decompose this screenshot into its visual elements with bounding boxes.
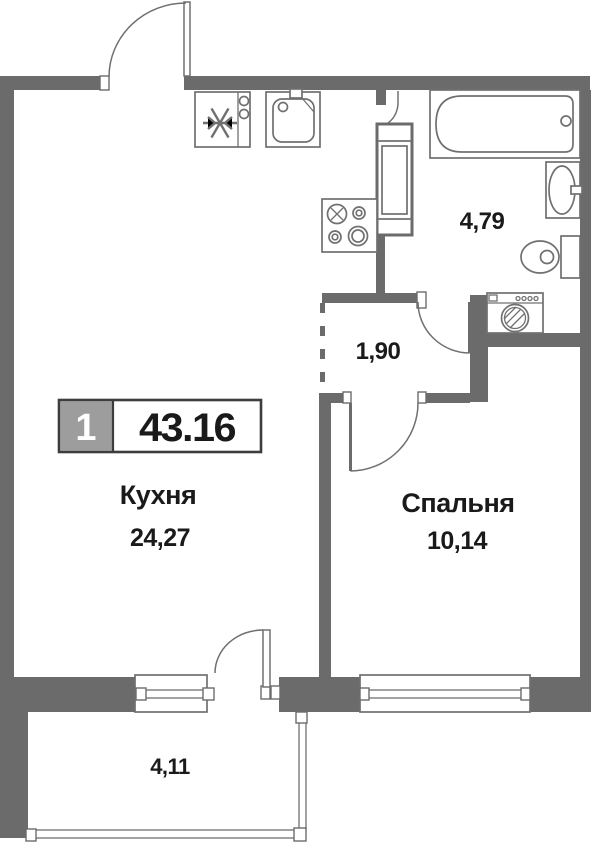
balcony-door-icon (215, 630, 270, 687)
balcony-glazing-bottom (34, 830, 296, 838)
bathroom-nook-door-icon (385, 91, 398, 125)
balcony-glazing-right (299, 722, 306, 829)
wall-hallway-top (322, 293, 417, 303)
bedroom-door-swing (351, 403, 419, 471)
kitchen-window-icon (135, 675, 214, 712)
wall-hallway-bottom-right (426, 393, 470, 403)
window-frame (360, 675, 530, 712)
bedroom-window-icon (360, 675, 530, 712)
entrance-door-icon (109, 2, 190, 77)
kitchen-area-label: 24,27 (130, 524, 190, 552)
stove-icon (322, 199, 377, 252)
hallway-area-label: 1,90 (356, 338, 401, 365)
window-end (360, 688, 369, 700)
vent-shaft-icon (377, 124, 412, 235)
toilet-tank (561, 236, 580, 278)
fridge-hinge (240, 97, 249, 106)
wall-kitchen-bedroom (319, 393, 331, 677)
badge-total-area: 43.16 (139, 406, 235, 450)
wall-bath-stub (376, 90, 386, 105)
bedroom-door-icon (351, 403, 419, 471)
window-end (521, 688, 530, 700)
unit-badge: 1 43.16 (59, 400, 261, 452)
entrance-door-swing (109, 3, 186, 77)
toilet-icon (521, 236, 580, 278)
bathtub-icon (430, 90, 580, 158)
badge-number: 1 (75, 407, 96, 449)
bathroom-door-swing (418, 302, 470, 353)
balcony-door-leaf (263, 630, 270, 687)
nook-door-swing (385, 104, 398, 125)
wall-bottom-middle (279, 677, 360, 712)
door-jamb (418, 392, 426, 403)
wall-top-left (0, 76, 100, 90)
door-jamb (343, 392, 351, 403)
glazing-end (26, 829, 36, 841)
bathroom-area-label: 4,79 (460, 208, 505, 235)
washbasin-tap (571, 186, 582, 194)
floor-plan: Кухня 24,27 Спальня 10,14 4,79 1,90 4,11… (0, 0, 600, 847)
kitchen-sink-icon (266, 89, 320, 147)
wall-bottom-bedroom (530, 677, 591, 712)
floor-plan-drawing: Кухня 24,27 Спальня 10,14 4,79 1,90 4,11… (0, 0, 600, 847)
wall-niche-left (470, 295, 488, 402)
kitchen-name-label: Кухня (120, 480, 196, 510)
glazing-end (296, 712, 307, 723)
wall-top-right (184, 76, 590, 90)
wall-bottom-kitchen (0, 677, 135, 712)
door-jamb (100, 76, 109, 90)
window-end (136, 688, 146, 700)
balcony-door-swing (215, 630, 263, 673)
wall-below-washer (487, 333, 580, 347)
door-jamb (271, 686, 280, 699)
door-jamb (261, 686, 270, 699)
wall-balcony-left (0, 712, 28, 838)
washbasin-icon (546, 162, 582, 218)
fridge-hinge (240, 110, 249, 119)
washing-machine-icon (487, 293, 543, 333)
bedroom-name-label: Спальня (401, 488, 514, 518)
bathroom-door-icon (418, 302, 470, 353)
window-end (203, 688, 214, 700)
walls (0, 76, 591, 838)
entrance-door-leaf (184, 2, 190, 76)
fridge-icon (195, 92, 250, 147)
wall-outer-left (0, 76, 14, 712)
sink-tap (290, 89, 302, 98)
balcony-area-label: 4,11 (150, 754, 190, 779)
bathtub-rim (430, 90, 580, 158)
bedroom-area-label: 10,14 (427, 527, 488, 555)
wall-outer-right (580, 90, 591, 712)
glazing-end (294, 828, 306, 841)
